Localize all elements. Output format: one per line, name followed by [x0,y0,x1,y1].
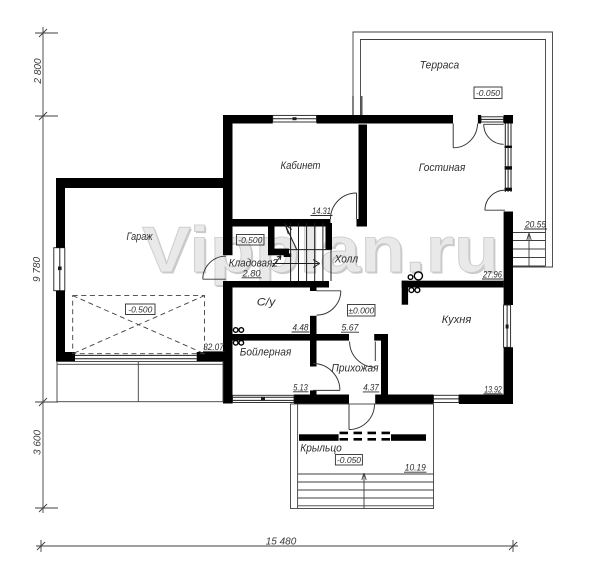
svg-text:Кабинет: Кабинет [281,160,321,172]
svg-text:Гараж: Гараж [127,231,153,243]
svg-text:15 480: 15 480 [266,537,297,548]
svg-text:-0.050: -0.050 [476,88,500,98]
svg-text:Гостиная: Гостиная [419,162,466,174]
svg-text:2 800: 2 800 [33,58,44,84]
svg-text:С/у: С/у [257,297,277,309]
svg-text:Холл: Холл [334,254,358,266]
svg-text:Терраса: Терраса [420,60,460,72]
svg-text:Бойлерная: Бойлерная [240,347,292,359]
svg-text:Крыльцо: Крыльцо [300,443,342,455]
svg-text:-0.500: -0.500 [238,235,262,245]
svg-text:9 780: 9 780 [32,257,43,282]
svg-text:Прихожая: Прихожая [332,363,379,375]
svg-text:±0.000: ±0.000 [348,306,374,316]
svg-text:3 600: 3 600 [33,430,44,455]
svg-text:-0.050: -0.050 [337,455,361,465]
svg-text:Кухня: Кухня [442,314,472,326]
svg-text:-0.500: -0.500 [128,304,152,314]
